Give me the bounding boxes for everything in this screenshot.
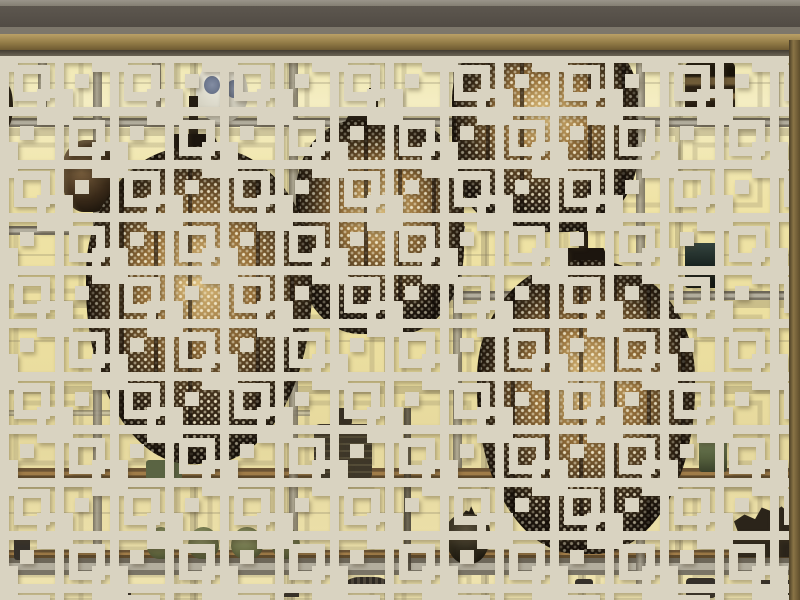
ceiling-band-mid — [0, 27, 800, 34]
lattice-screen — [0, 54, 800, 600]
museum-lattice-photo: Backlit museum display wall with ceramic… — [0, 0, 800, 600]
ceiling-band-brass — [0, 34, 800, 50]
ceiling-band-dark — [0, 6, 800, 27]
right-brass-edge — [789, 40, 800, 600]
ceiling-band-edge — [0, 50, 800, 56]
